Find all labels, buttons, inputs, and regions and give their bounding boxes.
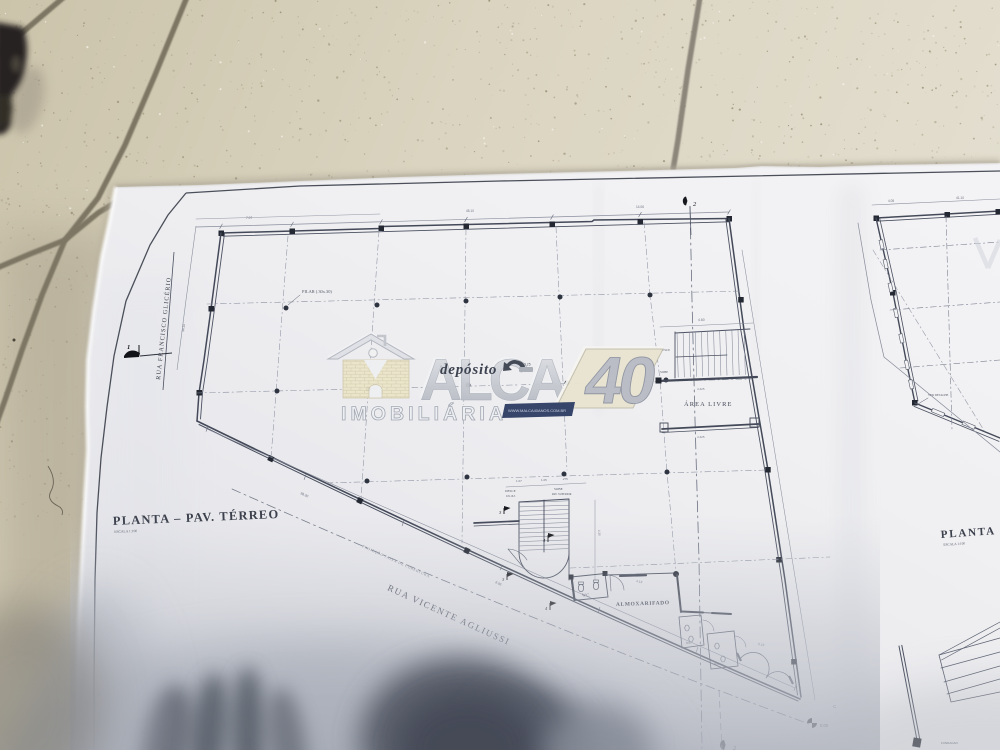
svg-text:4.60: 4.60 <box>698 318 705 322</box>
svg-text:IMOBILIÁRIA: IMOBILIÁRIA <box>341 402 503 425</box>
svg-text:VER DETALHE: VER DETALHE <box>928 393 949 397</box>
svg-text:SOBE: SOBE <box>660 370 668 374</box>
svg-text:40: 40 <box>579 344 660 417</box>
svg-text:+3.25: +3.25 <box>522 363 531 367</box>
svg-text:SOBE: SOBE <box>554 487 563 491</box>
svg-text:1: 1 <box>127 344 130 351</box>
svg-text:depósito: depósito <box>440 362 497 378</box>
svg-text:1.07: 1.07 <box>516 479 522 483</box>
svg-text:41.10: 41.10 <box>956 196 964 200</box>
svg-text:4.425: 4.425 <box>697 435 705 439</box>
svg-text:PAV. SUPERIOR: PAV. SUPERIOR <box>552 493 572 496</box>
svg-text:45.10: 45.10 <box>466 209 474 213</box>
svg-text:0.8-16.5: 0.8-16.5 <box>506 495 516 498</box>
svg-text:4.05: 4.05 <box>888 199 894 203</box>
svg-text:1.05: 1.05 <box>541 478 547 482</box>
svg-text:14.06: 14.06 <box>636 205 644 209</box>
svg-text:.275: .275 <box>562 477 568 481</box>
svg-text:4.425: 4.425 <box>697 387 705 391</box>
svg-text:ÁREA LIVRE: ÁREA LIVRE <box>684 400 732 408</box>
svg-text:DESCE: DESCE <box>505 489 516 493</box>
svg-text:PILAR (.30x.30): PILAR (.30x.30) <box>302 289 332 294</box>
svg-text:WWW.MALCA40ANOS.COM.BR: WWW.MALCA40ANOS.COM.BR <box>508 408 566 413</box>
svg-text:7.07: 7.07 <box>246 216 252 220</box>
